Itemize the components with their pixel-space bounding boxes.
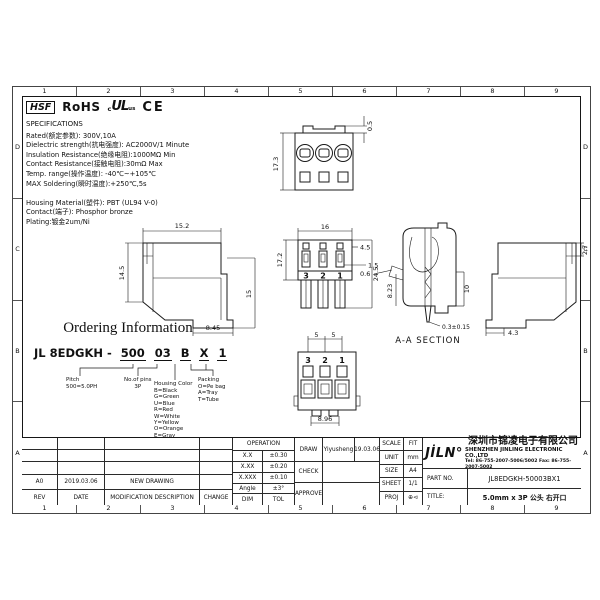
dim-top: 2.7	[581, 245, 589, 255]
dim-lip: 0.6	[360, 270, 370, 278]
zone-col: 5	[269, 504, 333, 513]
zone-columns-top: 1 2 3 4 5 6 7 8 9	[13, 87, 588, 96]
zone-col: 2	[77, 87, 141, 96]
spec-line: Insulation Resistance(绝缘电阻):1000MΩ Min	[26, 149, 241, 159]
info-label: SHEET	[380, 478, 404, 491]
info-value: mm	[404, 451, 423, 464]
zone-col: 4	[205, 504, 269, 513]
rev-cell	[58, 450, 105, 462]
sign-check-label: CHECK	[295, 462, 323, 483]
zone-rows-left: D C B A	[13, 97, 22, 503]
ordering-leader-lines	[28, 320, 243, 432]
part-no-row: PART NO. JL8EDGKH-50003BX1	[423, 469, 581, 489]
rev-entry-date: 2019.03.06	[58, 475, 105, 490]
signature-table: DRAW Yiyusheng 19.03.06 CHECK APPROVE	[295, 438, 380, 505]
rev-header-date: DATE	[58, 490, 105, 505]
rev-entry-description: NEW DRAWING	[105, 475, 200, 490]
section-view-drawing: 0.6 8.23 10 0.3±0.15 A-A SECTION	[348, 212, 478, 348]
zone-col: 8	[461, 87, 525, 96]
tol-footer-tol: TOL	[263, 494, 295, 505]
zone-col: 8	[461, 504, 525, 513]
dim-height: 17.2	[276, 253, 284, 267]
side-view-right-drawing: 2.7 4.3	[478, 216, 590, 340]
company-names: 深圳市锦凌电子有限公司 SHENZHEN JINLING ELECTRONIC …	[465, 438, 581, 468]
spec-line: Rated(额定参数): 300V,10A	[26, 130, 241, 140]
tol-range: X.XX	[233, 462, 263, 473]
rev-header-change: CHANGE	[200, 490, 233, 505]
spec-line	[26, 187, 241, 197]
zone-col: 6	[333, 504, 397, 513]
projection-symbol-icon: ⊕⊲	[404, 492, 423, 505]
certification-logos: HSF RoHS cULus CE	[26, 99, 165, 115]
rev-entry-change	[200, 475, 233, 490]
rev-cell	[22, 462, 58, 475]
spec-line: Dielectric strength(抗电强度): AC2000V/1 Min…	[26, 139, 241, 149]
zone-col: 9	[525, 87, 588, 96]
dim-body-height: 14.5	[118, 266, 126, 280]
info-value: 1/1	[404, 478, 423, 491]
zone-col: 4	[205, 87, 269, 96]
ordering-group-color: Housing Color B=Black G=Green U=Blue R=R…	[154, 381, 192, 439]
revision-table: A0 2019.03.06 NEW DRAWING REV DATE MODIF…	[22, 438, 233, 505]
group-line: 3P	[124, 384, 152, 390]
dim-height: 17.3	[272, 157, 280, 171]
zone-row: A	[13, 402, 22, 503]
spec-line: Temp. range(操作温度): -40℃~+105℃	[26, 168, 241, 178]
dim-pin-tip: 0.3±0.15	[442, 324, 470, 331]
pin-number: 2	[322, 356, 328, 365]
zone-col: 5	[269, 87, 333, 96]
ordering-group-pins: No.of pins 3P	[124, 377, 152, 390]
ce-mark-icon: CE	[142, 100, 164, 115]
sign-check-value	[323, 462, 380, 483]
tol-range: Angle	[233, 484, 263, 494]
engineering-drawing-sheet: 1 2 3 4 5 6 7 8 9 1 2 3 4 5 6 7 8 9 D C …	[0, 0, 600, 600]
zone-row: B	[13, 301, 22, 403]
spec-line: Contact Resistance(接触电阻):30mΩ Max	[26, 158, 241, 168]
rev-cell	[22, 450, 58, 462]
ordering-information: Ordering Information JL 8EDGKH - 500 03 …	[28, 320, 243, 432]
group-title: Pitch	[66, 377, 97, 383]
sign-approve-label: APPROVE	[295, 483, 323, 505]
sign-draw-label: DRAW	[295, 438, 323, 462]
dim-tab: 0.5	[366, 121, 374, 131]
info-label: SIZE	[380, 465, 404, 478]
sign-draw-name: Yiyusheng	[323, 438, 355, 462]
company-header: JİLN° 深圳市锦凌电子有限公司 SHENZHEN JINLING ELECT…	[423, 438, 581, 469]
rev-header-description: MODIFICATION DESCRIPTION	[105, 490, 200, 505]
tol-value: ±0.10	[263, 473, 295, 484]
zone-col: 9	[525, 504, 588, 513]
front-view-drawing: 17.3 0.5	[255, 98, 385, 198]
company-name-en: SHENZHEN JINLING ELECTRONIC CO.,LTD	[465, 447, 581, 459]
pin-number: 1	[337, 272, 343, 281]
zone-col: 2	[77, 504, 141, 513]
pin-number: 3	[303, 272, 309, 281]
tol-value: ±0.20	[263, 462, 295, 473]
rev-cell	[58, 438, 105, 450]
rohs-logo-icon: RoHS	[62, 100, 100, 114]
info-label: PROJ	[380, 492, 404, 505]
ordering-group-pitch: Pitch 500=5.0PH	[66, 377, 97, 390]
group-title: Packing	[198, 377, 226, 383]
tol-range: X.XXX	[233, 473, 263, 484]
zone-col: 7	[397, 504, 461, 513]
tol-range: X.X	[233, 451, 263, 462]
spec-line: MAX Soldering(瞬时温度):+250℃,5s	[26, 178, 241, 188]
tol-footer-dim: DIM	[233, 494, 263, 505]
zone-columns-bottom: 1 2 3 4 5 6 7 8 9	[13, 504, 588, 513]
tolerance-title: OPERATION	[233, 438, 295, 451]
group-title: No.of pins	[124, 377, 152, 383]
spec-line: Housing Material(塑件): PBT (UL94 V-0)	[26, 197, 241, 207]
zone-col: 6	[333, 87, 397, 96]
rev-header-rev: REV	[22, 490, 58, 505]
company-block: JİLN° 深圳市锦凌电子有限公司 SHENZHEN JINLING ELECT…	[423, 438, 581, 505]
tol-value: ±3°	[263, 484, 295, 494]
company-name-cn: 深圳市锦凌电子有限公司	[468, 436, 578, 447]
sign-draw-date: 19.03.06	[355, 438, 380, 462]
rev-cell	[200, 438, 233, 450]
title-block: A0 2019.03.06 NEW DRAWING REV DATE MODIF…	[22, 437, 581, 505]
spec-line: Contact(端子): Phosphor bronze	[26, 206, 241, 216]
ordering-group-packing: Packing O=Pe bag A=Tray T=Tube	[198, 377, 226, 403]
tolerance-table: OPERATION X.X ±0.30 X.XX ±0.20 X.XXX ±0.…	[233, 438, 295, 505]
pin-number: 3	[305, 356, 311, 365]
title-row: TITLE: 5.0mm x 3P 公头 右开口	[423, 489, 581, 505]
part-no-label: PART NO.	[423, 469, 468, 488]
zone-col: 3	[141, 87, 205, 96]
zone-row: D	[13, 97, 22, 199]
rev-cell	[200, 450, 233, 462]
rev-entry-rev: A0	[22, 475, 58, 490]
jiln-logo: JİLN°	[423, 438, 465, 468]
rev-cell	[22, 438, 58, 450]
rev-cell	[58, 462, 105, 475]
rev-cell	[105, 450, 200, 462]
zone-row: C	[13, 199, 22, 301]
dim-pitch: 5	[331, 331, 335, 339]
rev-cell	[105, 438, 200, 450]
dim-lower-height: 15	[245, 290, 253, 298]
tol-value: ±0.30	[263, 451, 295, 462]
info-label: SCALE	[380, 438, 404, 451]
dim-pin-length: 10	[463, 285, 471, 293]
dim-pitch: 5	[314, 331, 318, 339]
info-table: SCALE FIT UNIT mm SIZE A4 SHEET 1/1 PROJ…	[380, 438, 423, 505]
dim-depth: 8.23	[386, 284, 394, 298]
spec-line: SPECIFICATIONS	[26, 120, 241, 130]
dim-width: 8.96	[318, 415, 332, 423]
zone-row: A	[581, 402, 590, 503]
info-label: UNIT	[380, 451, 404, 464]
info-value: A4	[404, 465, 423, 478]
ul-recognized-icon: cULus	[107, 101, 135, 113]
pin-number: 1	[339, 356, 345, 365]
title-label: TITLE:	[423, 489, 468, 505]
pin-number: 2	[320, 272, 326, 281]
hsf-logo-icon: HSF	[26, 101, 55, 114]
group-line: T=Tube	[198, 397, 226, 403]
zone-col: 1	[13, 87, 77, 96]
bottom-view-drawing: 3 2 1 5 5 8.96	[278, 330, 393, 430]
ul-us: us	[128, 106, 135, 113]
section-label: A-A SECTION	[395, 336, 460, 346]
dim-foot: 4.3	[508, 329, 518, 337]
zone-row: D	[581, 97, 590, 199]
ul-main: UL	[111, 101, 128, 113]
specifications-block: SPECIFICATIONS Rated(额定参数): 300V,10A Die…	[26, 120, 241, 226]
group-title: Housing Color	[154, 381, 192, 387]
group-line: 500=5.0PH	[66, 384, 97, 390]
zone-col: 1	[13, 504, 77, 513]
dim-width: 16	[321, 223, 329, 231]
zone-col: 3	[141, 504, 205, 513]
title-value: 5.0mm x 3P 公头 右开口	[468, 489, 581, 505]
dim-width: 15.2	[175, 222, 189, 230]
info-value: FIT	[404, 438, 423, 451]
sign-approve-value	[323, 483, 380, 505]
zone-col: 7	[397, 87, 461, 96]
part-no-value: JL8EDGKH-50003BX1	[468, 469, 581, 488]
rev-cell	[105, 462, 200, 475]
rev-cell	[200, 462, 233, 475]
